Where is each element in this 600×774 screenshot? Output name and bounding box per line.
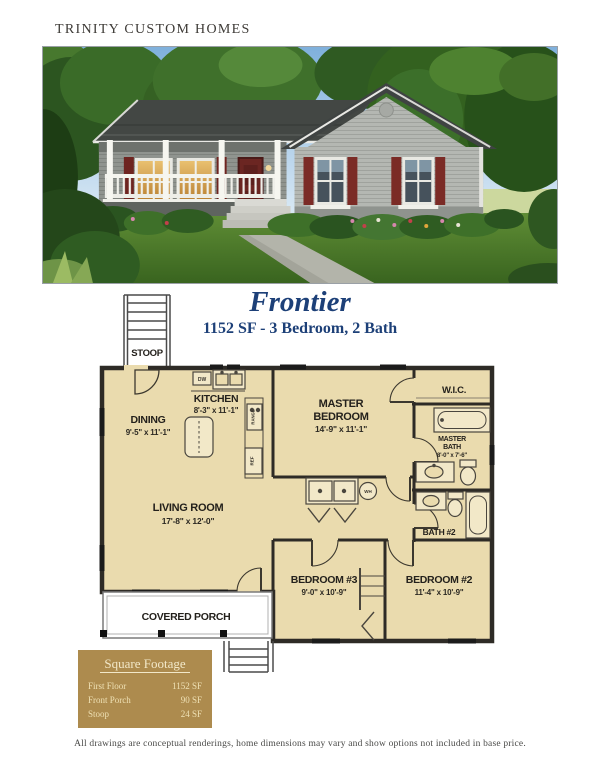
shutter-icon [347,157,357,205]
shutter-icon [391,157,401,205]
range-label: RANGE [251,409,256,424]
disclaimer-text: All drawings are conceptual renderings, … [0,739,600,749]
square-footage-rows: First Floor 1152 SF Front Porch 90 SF St… [88,679,202,721]
room-dims-bedroom3: 9'-0" x 10'-9" [301,588,346,597]
room-label-master-bath-1: MASTER [438,436,466,443]
gable-vent-icon [379,103,393,117]
toilet [461,467,476,485]
shutter-icon [303,157,313,205]
room-dims-master-bath: 8'-0" x 7'-6" [437,453,467,459]
shutter-icon [435,157,445,205]
sqft-label: Stoop [88,707,109,721]
square-footage-title-text: Square Footage [100,656,189,673]
room-label-bedroom3: BEDROOM #3 [291,574,358,586]
sqft-value: 24 SF [181,707,202,721]
sqft-row-first-floor: First Floor 1152 SF [88,679,202,693]
house-rendering [43,47,557,283]
room-label-master-bedroom-2: BEDROOM [313,411,368,423]
porch-steps-plan [224,641,273,672]
room-dims-kitchen: 8'-3" x 11'-1" [194,406,239,415]
square-footage-box: Square Footage First Floor 1152 SF Front… [78,650,212,728]
room-label-master-bedroom-1: MASTER [319,398,364,410]
sqft-row-stoop: Stoop 24 SF [88,707,202,721]
porch-light-icon [266,165,272,171]
sqft-label: First Floor [88,679,126,693]
square-footage-title: Square Footage [88,656,202,672]
room-dims-living: 17'-8" x 12'-0" [162,516,215,526]
room-label-wic: W.I.C. [442,385,466,396]
dishwasher-label: DW [198,377,207,383]
builder-name: TRINITY CUSTOM HOMES [55,22,251,38]
toilet-tank [448,492,463,499]
sqft-label: Front Porch [88,693,131,707]
toilet-tank [460,460,476,467]
room-label-bedroom2: BEDROOM #2 [406,574,473,586]
water-heater-label: WH [364,489,372,494]
room-dims-bedroom2: 11'-4" x 10'-9" [415,588,464,597]
sqft-value: 90 SF [181,693,202,707]
flyer-page: TRINITY CUSTOM HOMES [0,0,600,774]
room-label-living: LIVING ROOM [153,502,224,514]
room-dims-dining: 9'-5" x 11'-1" [126,428,171,437]
room-label-bath2: BATH #2 [423,527,456,537]
room-label-master-bath-2: BATH [443,444,461,451]
floor-plan: STOOP [98,290,498,682]
room-label-covered-porch: COVERED PORCH [142,611,231,623]
sqft-row-front-porch: Front Porch 90 SF [88,693,202,707]
refrigerator-label: REF [250,456,255,465]
sqft-value: 1152 SF [172,679,202,693]
room-label-kitchen: KITCHEN [194,393,239,405]
house-photo [42,46,558,284]
room-dims-master-bedroom: 14'-9" x 11'-1" [315,424,367,434]
toilet [448,500,462,517]
room-label-stoop: STOOP [131,348,164,359]
room-label-dining: DINING [131,414,166,426]
